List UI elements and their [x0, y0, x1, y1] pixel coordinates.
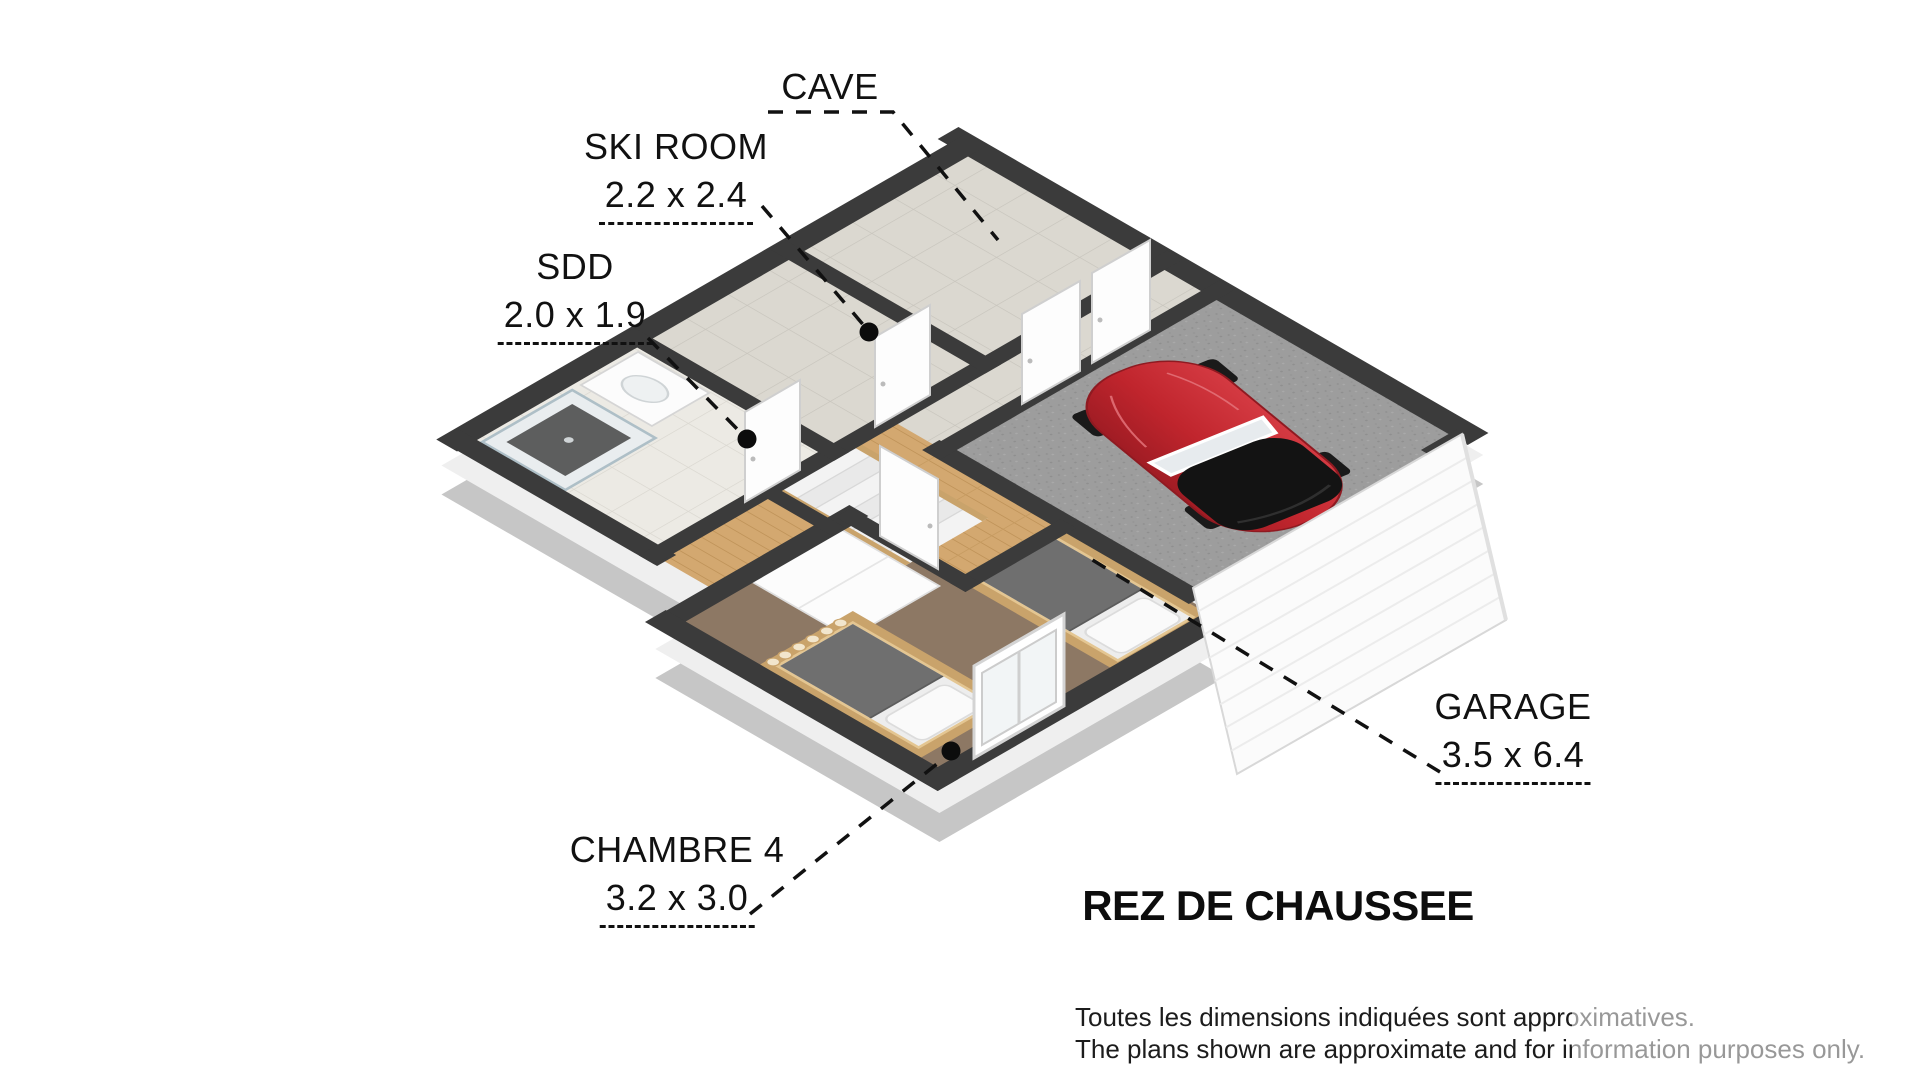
floor-title: REZ DE CHAUSSEE: [1082, 882, 1474, 930]
disclaimer-line-fr: Toutes les dimensions indiquées sont app…: [1075, 1001, 1865, 1033]
disclaimer-line-en: The plans shown are approximate and for …: [1075, 1033, 1865, 1065]
room-label-cave: CAVE: [781, 64, 878, 110]
room-label-sdd: SDD 2.0 x 1.9: [498, 244, 653, 345]
room-name: CAVE: [781, 64, 878, 110]
room-marker-dot: [942, 742, 961, 761]
floor-plan-illustration: [0, 0, 1920, 1080]
room-label-chambre-4: CHAMBRE 4 3.2 x 3.0: [570, 827, 785, 928]
disclaimer: Toutes les dimensions indiquées sont app…: [1075, 1001, 1865, 1065]
room-name: CHAMBRE 4: [570, 827, 785, 873]
room-dimensions: 2.2 x 2.4: [599, 172, 754, 225]
room-label-garage: GARAGE 3.5 x 6.4: [1434, 684, 1591, 785]
room-dimensions: 2.0 x 1.9: [498, 292, 653, 345]
room-dimensions: 3.2 x 3.0: [600, 875, 755, 928]
room-marker-dot: [738, 430, 757, 449]
room-dimensions: 3.5 x 6.4: [1436, 732, 1591, 785]
room-name: SKI ROOM: [584, 124, 768, 170]
floor-plan-page: CAVE SKI ROOM 2.2 x 2.4 SDD 2.0 x 1.9 GA…: [0, 0, 1920, 1080]
room-marker-dot: [860, 323, 879, 342]
room-name: GARAGE: [1434, 684, 1591, 730]
room-name: SDD: [498, 244, 653, 290]
room-label-ski-room: SKI ROOM 2.2 x 2.4: [584, 124, 768, 225]
